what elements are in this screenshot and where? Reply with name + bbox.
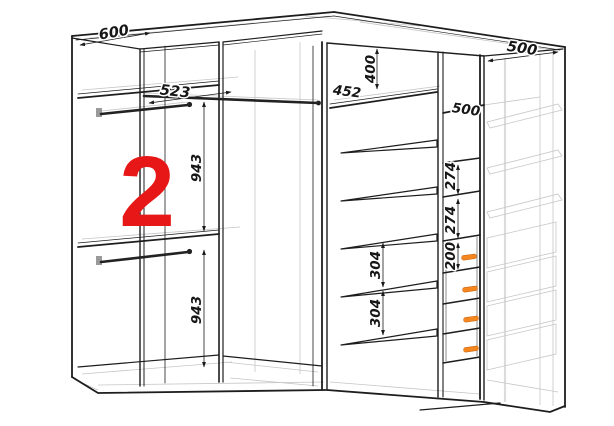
dimension-500-top: 500 [506, 39, 538, 60]
dimension-943-lower: 943 [189, 296, 205, 324]
dimension-523: 523 [159, 82, 191, 101]
dimension-304-lower: 304 [368, 299, 384, 327]
dimension-452: 452 [331, 82, 362, 101]
dimension-274-upper: 274 [443, 162, 459, 190]
right-shelves [341, 140, 437, 345]
dimension-500-shelf: 500 [451, 100, 481, 120]
drawer-handle-4 [463, 346, 478, 353]
section-number-label: 2 [119, 136, 175, 248]
drawer-handle-2 [462, 286, 477, 293]
dimension-304-upper: 304 [368, 251, 384, 279]
dimension-400: 400 [363, 55, 379, 84]
dimension-200: 200 [443, 242, 459, 270]
drawer-handle-1 [461, 254, 476, 261]
dimension-274-lower: 274 [443, 206, 459, 234]
wardrobe-technical-drawing: 600 500 523 943 943 400 452 500 274 274 … [0, 0, 614, 426]
dimension-600: 600 [98, 22, 131, 43]
dimension-943-upper: 943 [189, 154, 205, 182]
drawing-canvas: 600 500 523 943 943 400 452 500 274 274 … [0, 0, 614, 426]
drawer-handle-3 [463, 316, 478, 323]
